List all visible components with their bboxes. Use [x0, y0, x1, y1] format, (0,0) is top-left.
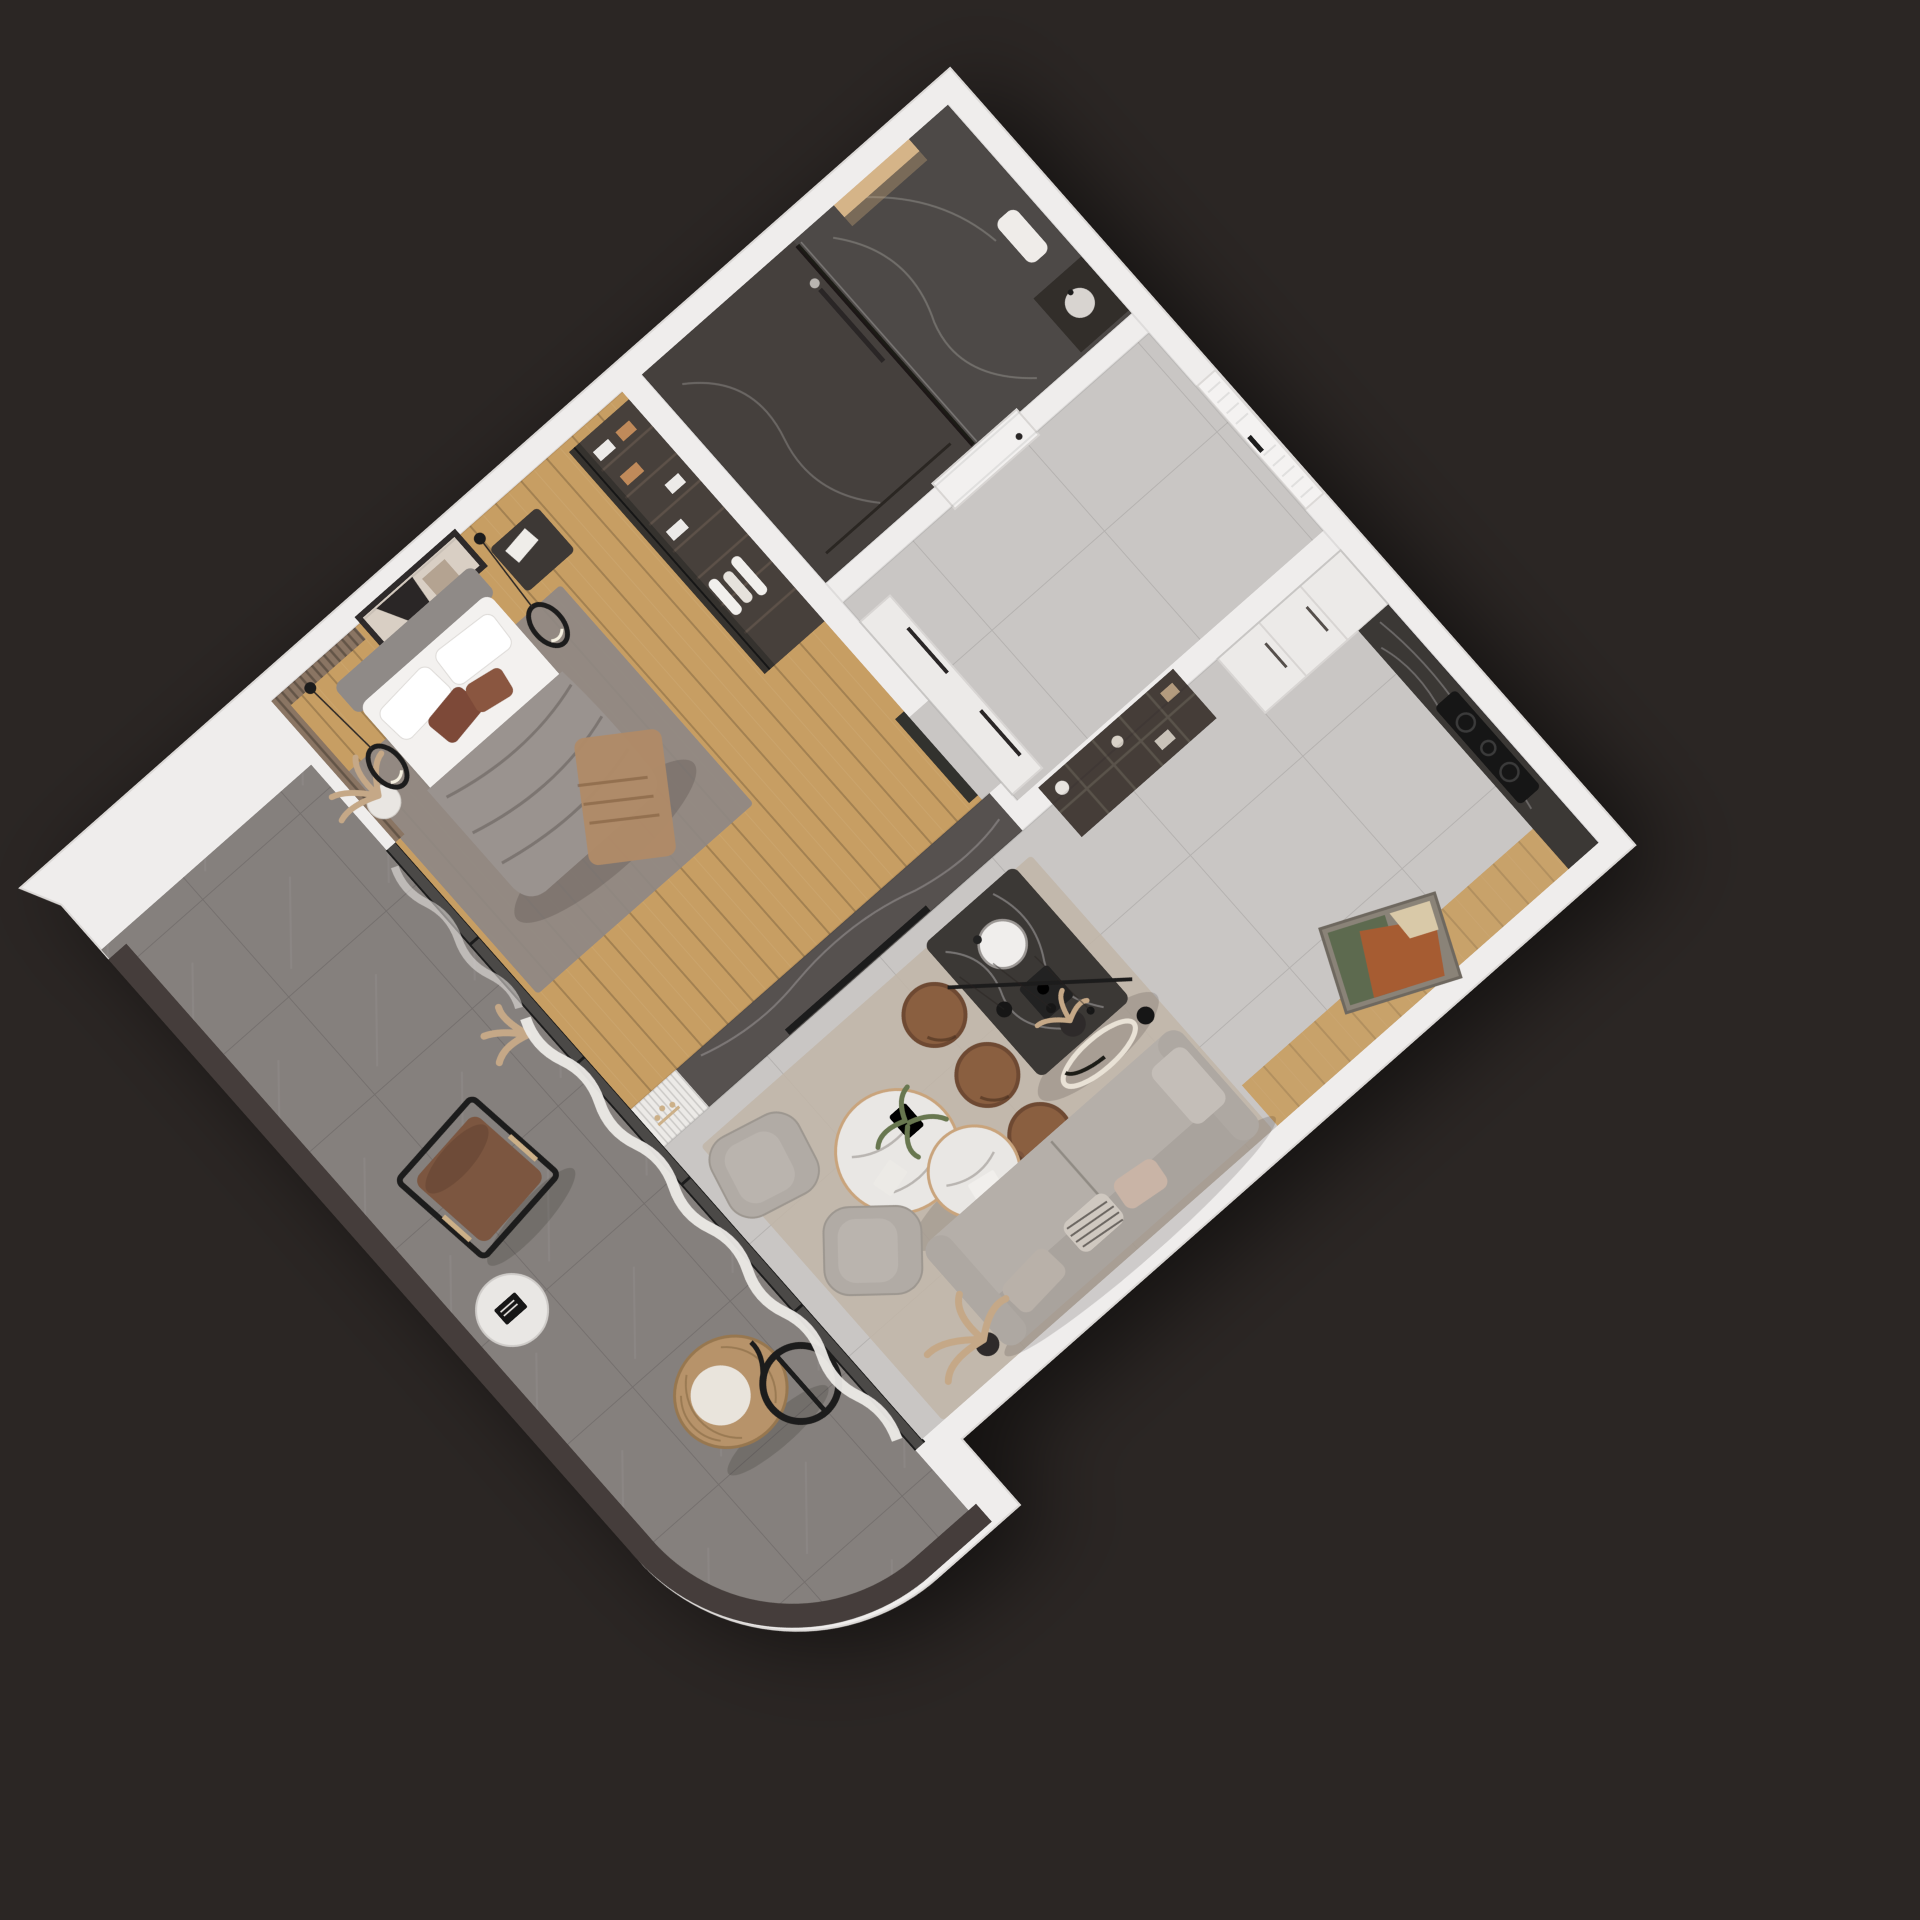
floor-plan-scene — [0, 0, 1920, 1920]
throw-blanket — [573, 728, 677, 866]
armchair — [823, 1205, 923, 1295]
armchair-seat — [837, 1218, 899, 1283]
